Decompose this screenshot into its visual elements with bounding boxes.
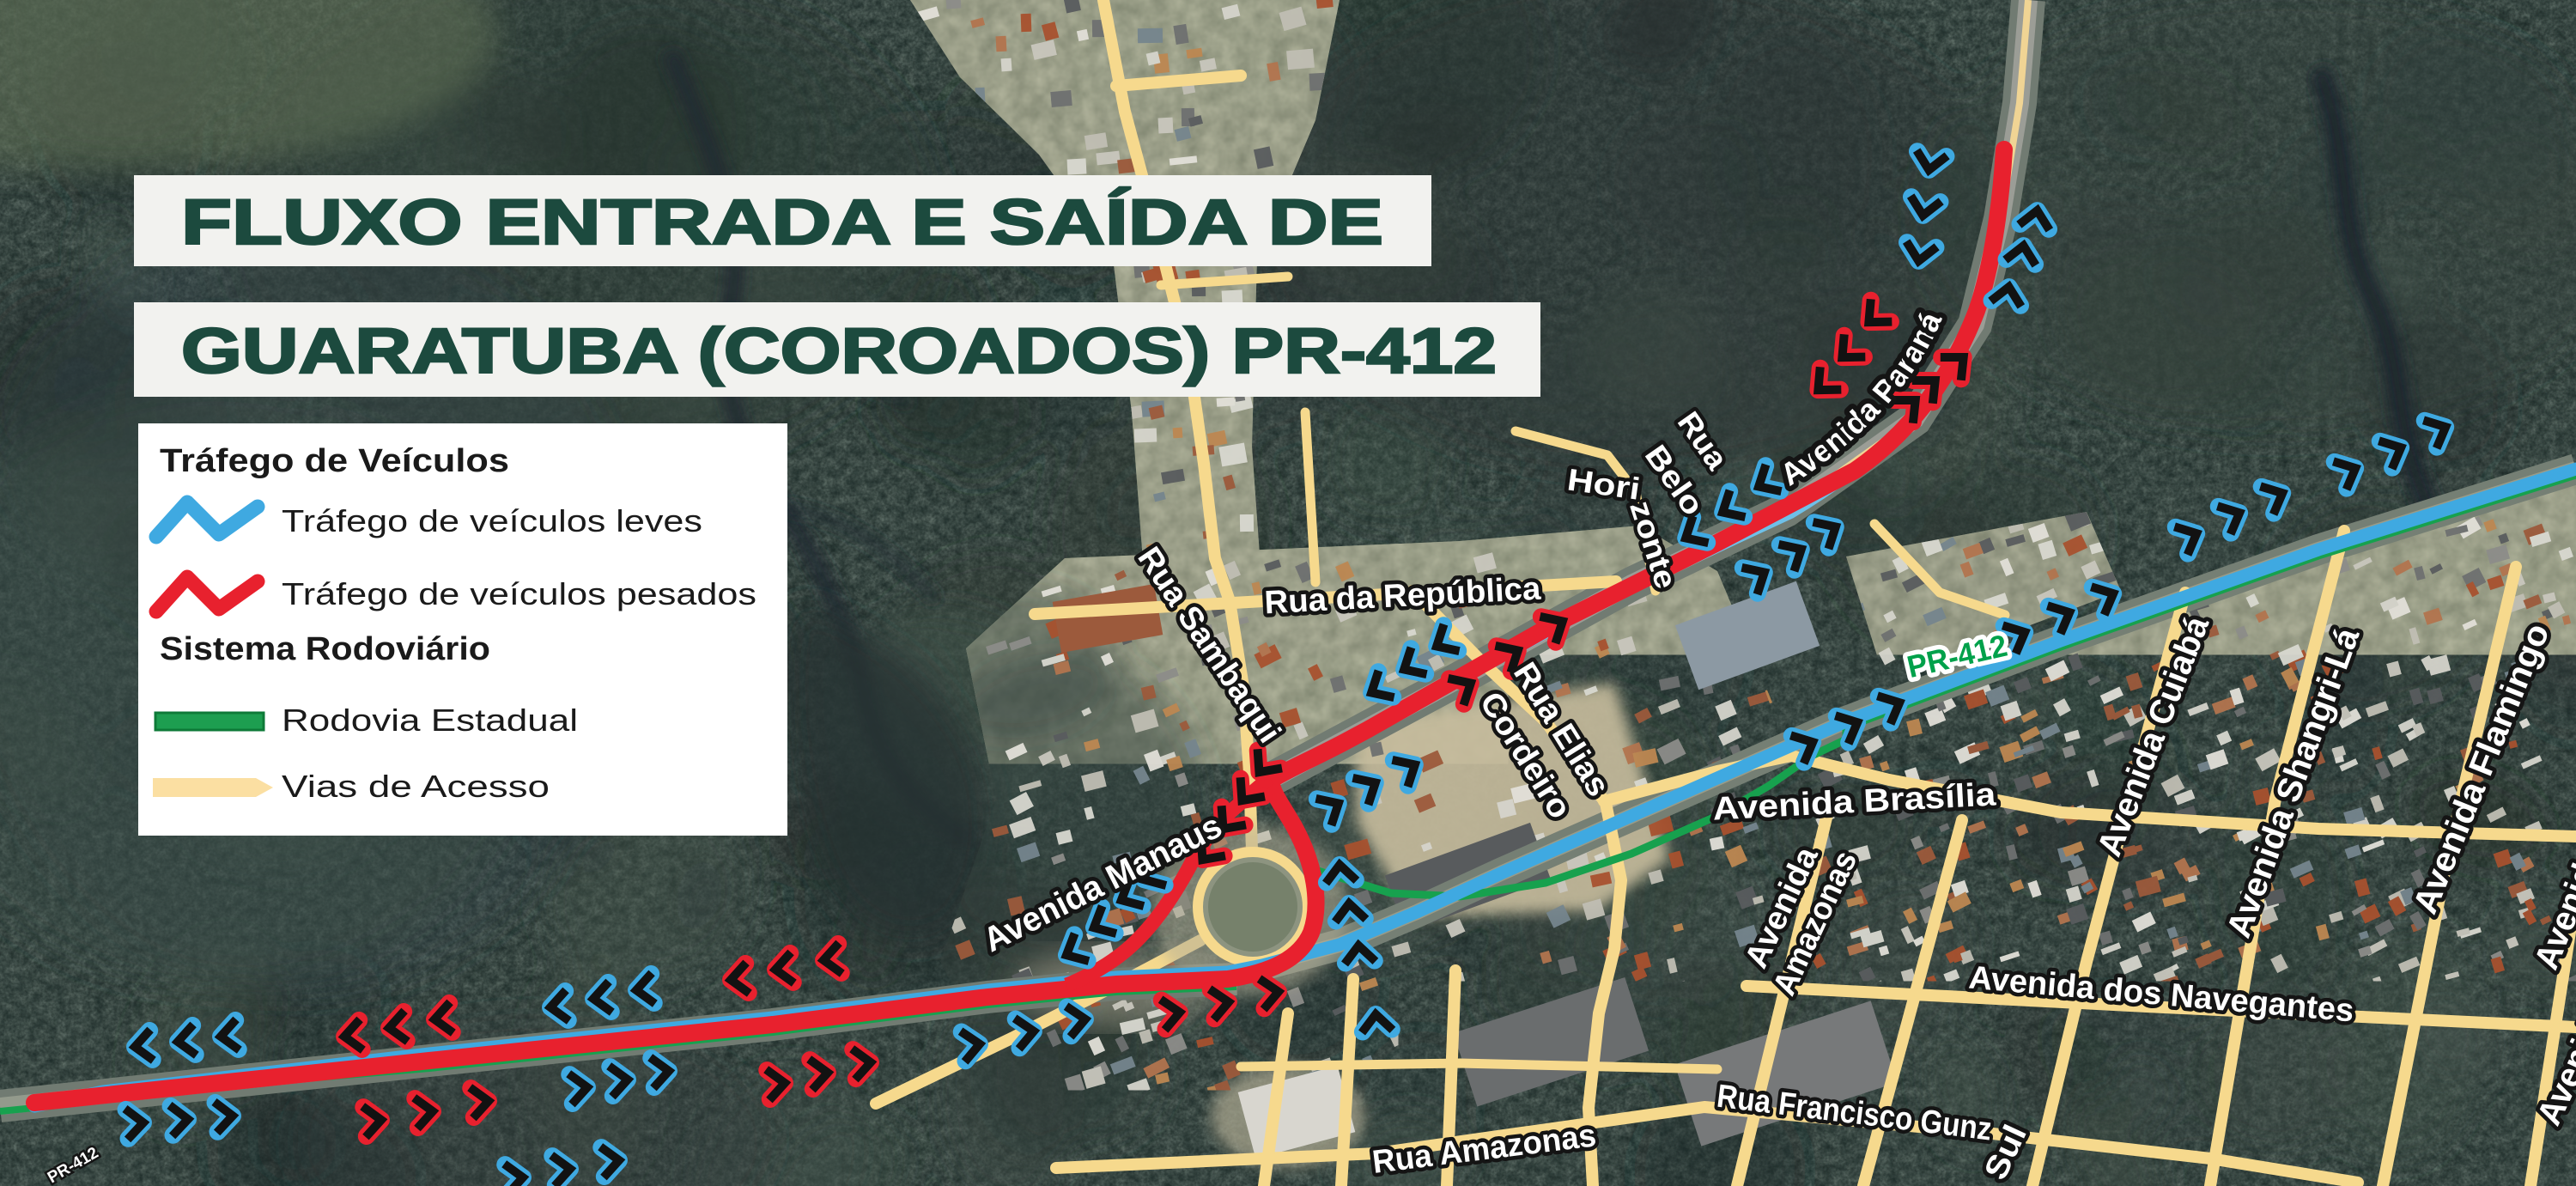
svg-text:Sistema Rodoviário: Sistema Rodoviário [160,631,490,667]
svg-text:Tráfego de veículos leves: Tráfego de veículos leves [282,503,702,538]
svg-text:Tráfego de veículos pesados: Tráfego de veículos pesados [282,576,756,611]
svg-text:FLUXO ENTRADA E SAÍDA DE: FLUXO ENTRADA E SAÍDA DE [181,186,1383,258]
svg-text:GUARATUBA (COROADOS) PR-412: GUARATUBA (COROADOS) PR-412 [181,315,1497,386]
svg-text:Rodovia Estadual: Rodovia Estadual [282,702,578,738]
svg-text:Vias de Acesso: Vias de Acesso [282,769,550,804]
svg-text:Tráfego de Veículos: Tráfego de Veículos [160,443,509,479]
